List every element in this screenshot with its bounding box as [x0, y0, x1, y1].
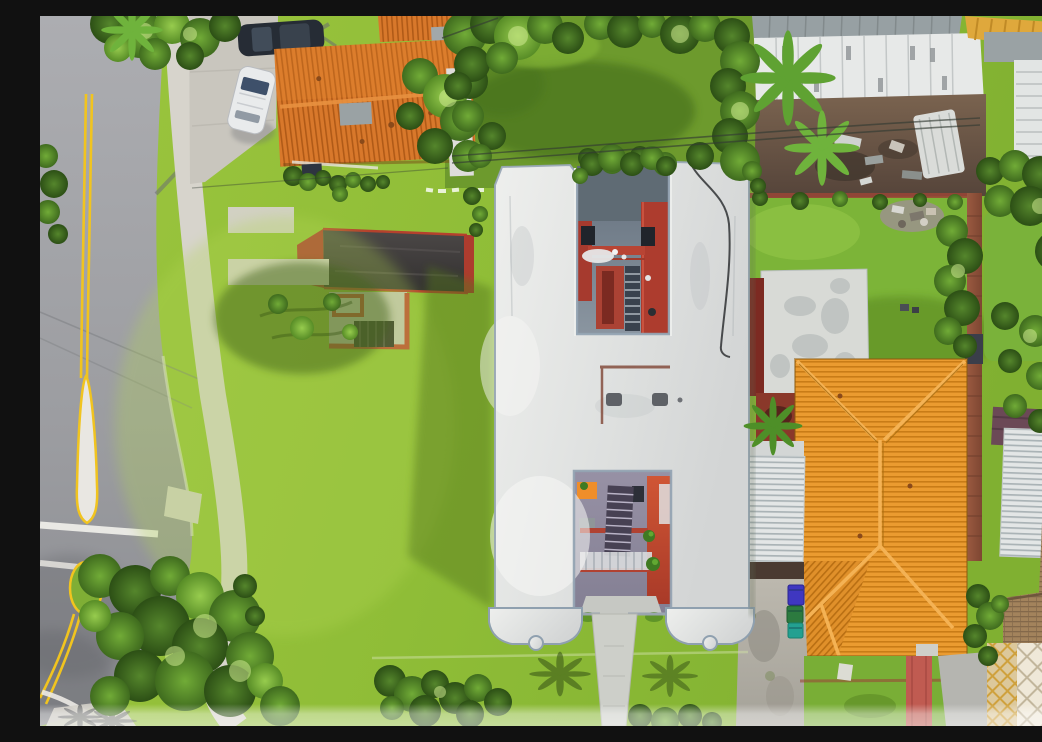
lawn-chair: [837, 663, 853, 681]
catwalk: [580, 552, 652, 570]
courtyard-stairs-south: [604, 485, 634, 556]
orange-tile-roof-house: [795, 359, 967, 656]
bottom-fade: [40, 704, 1042, 726]
corrugated-roof-right: [1000, 428, 1042, 558]
aerial-photo: [40, 16, 1042, 726]
roof-ac-unit: [339, 102, 372, 126]
trash-bins: [787, 585, 804, 638]
courtyard-stairs-north: [625, 266, 640, 331]
north-courtyard: [577, 166, 669, 334]
neighbor-roof-edge: [984, 32, 1042, 62]
palm-by-carport: [744, 397, 803, 456]
h-building: [480, 162, 755, 726]
debris-pile: [880, 200, 944, 232]
aerial-photo-canvas: [40, 16, 1042, 726]
